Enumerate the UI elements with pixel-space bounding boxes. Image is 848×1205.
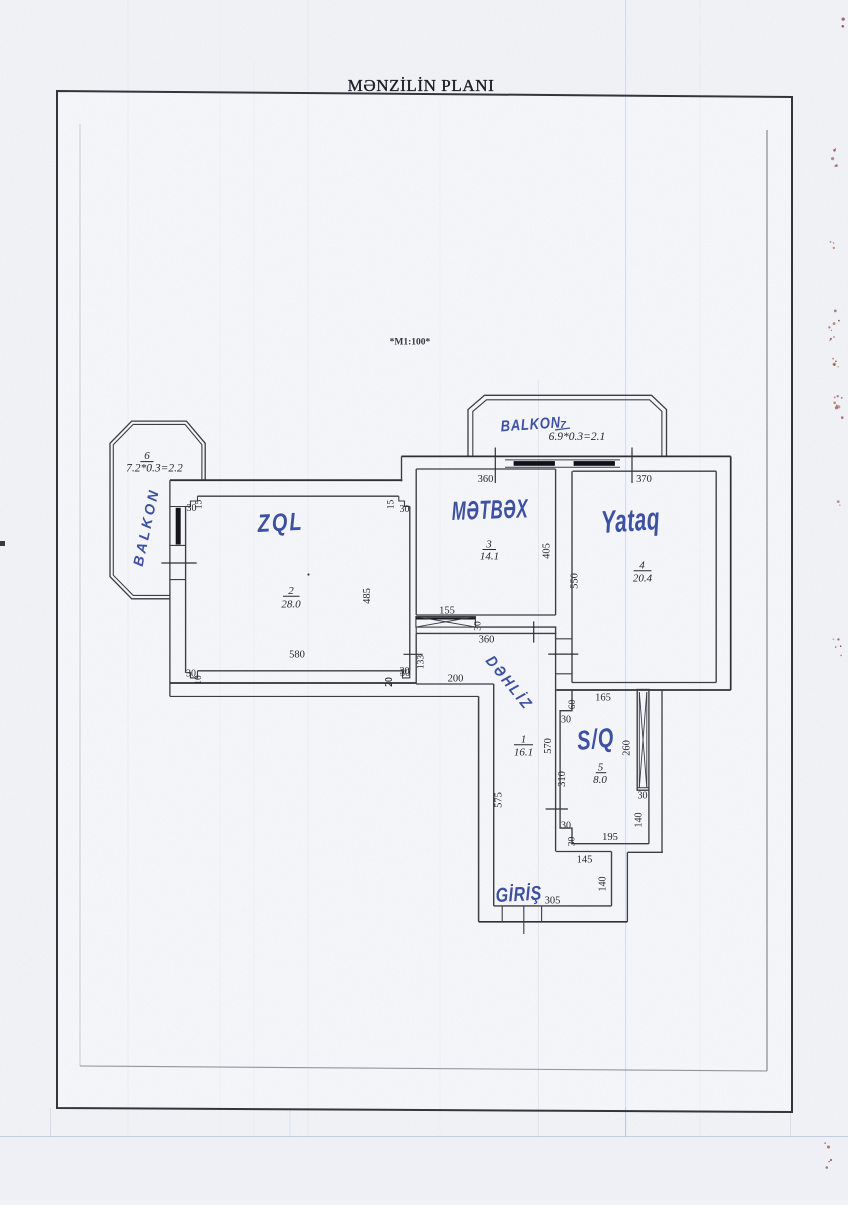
svg-text:GİRİŞ: GİRİŞ (495, 882, 542, 906)
svg-text:30: 30 (638, 791, 648, 802)
svg-text:6: 6 (144, 450, 150, 462)
svg-text:5: 5 (598, 762, 604, 774)
svg-text:260: 260 (622, 740, 633, 756)
svg-text:30: 30 (561, 820, 571, 831)
svg-text:16.1: 16.1 (514, 747, 533, 759)
svg-text:MƏNZİLİN PLANI: MƏNZİLİN PLANI (348, 76, 495, 95)
svg-text:3: 3 (485, 539, 492, 551)
svg-text:8.0: 8.0 (593, 774, 607, 786)
svg-text:570: 570 (543, 738, 554, 754)
svg-text:30: 30 (474, 621, 484, 631)
svg-text:7.2*0.3=2.2: 7.2*0.3=2.2 (126, 463, 183, 475)
svg-text:200: 200 (448, 674, 464, 685)
svg-text:2: 2 (288, 585, 294, 597)
svg-text:ZQL: ZQL (256, 508, 304, 538)
svg-text:370: 370 (636, 474, 652, 485)
svg-text:4: 4 (639, 560, 645, 572)
svg-text:140: 140 (598, 877, 609, 892)
svg-text:15: 15 (387, 500, 397, 510)
svg-text:133: 133 (416, 655, 426, 670)
svg-text:30: 30 (400, 668, 410, 679)
svg-text:305: 305 (545, 896, 561, 907)
svg-text:15: 15 (195, 500, 205, 510)
svg-text:1: 1 (521, 734, 527, 746)
svg-text:20: 20 (385, 677, 395, 687)
svg-text:MƏTBƏX: MƏTBƏX (451, 494, 529, 526)
svg-text:30: 30 (400, 504, 410, 515)
svg-text:S/Q: S/Q (576, 722, 616, 756)
svg-text:20.4: 20.4 (633, 573, 653, 585)
svg-text:140: 140 (633, 813, 644, 828)
svg-text:405: 405 (542, 543, 553, 559)
svg-text:*M1:100*: *M1:100* (390, 338, 431, 348)
svg-text:575: 575 (494, 792, 505, 808)
svg-text:165: 165 (595, 693, 611, 704)
svg-text:145: 145 (577, 855, 593, 866)
svg-text:30: 30 (568, 837, 578, 847)
svg-text:60: 60 (568, 700, 578, 710)
svg-text:30: 30 (561, 715, 571, 726)
svg-text:310: 310 (557, 771, 568, 787)
svg-text:14.1: 14.1 (480, 551, 499, 563)
svg-text:6.9*0.3=2.1: 6.9*0.3=2.1 (549, 431, 606, 443)
svg-text:10: 10 (194, 675, 204, 685)
svg-text:485: 485 (362, 588, 373, 604)
svg-text:28.0: 28.0 (281, 599, 301, 611)
svg-text:360: 360 (479, 635, 495, 646)
svg-text:195: 195 (602, 832, 618, 843)
svg-text:580: 580 (289, 650, 305, 661)
svg-text:360: 360 (478, 474, 494, 485)
svg-text:Yataq: Yataq (600, 501, 661, 540)
